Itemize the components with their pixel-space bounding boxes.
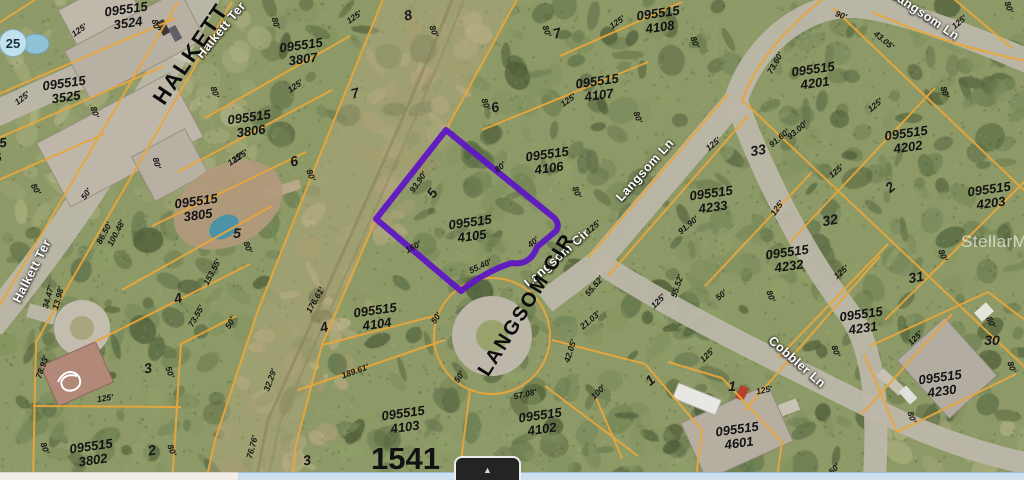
road-langsom-cir-stub	[545, 262, 598, 302]
map-marker-25[interactable]: 25	[0, 29, 27, 57]
aerial-plat-map[interactable]: 095515 3524095515 3525095515 3526095515 …	[0, 0, 1024, 480]
roads	[0, 0, 1024, 480]
house-4230	[897, 318, 997, 419]
road-langsom-ln-left	[598, 100, 736, 262]
watermark: StellarMLS	[961, 232, 1024, 252]
chevron-up-icon: ▲	[483, 466, 492, 475]
greenway-strip	[205, 0, 520, 480]
expand-panel-button[interactable]: ▲	[454, 456, 521, 480]
map-overlay	[0, 0, 1024, 480]
west-culdesac-island	[70, 316, 94, 340]
langsom-cir-island	[476, 320, 508, 352]
bottom-panel-right	[238, 472, 1024, 480]
shed	[974, 302, 994, 322]
bottom-panel-left	[0, 472, 238, 480]
rv-trailer	[673, 383, 722, 415]
